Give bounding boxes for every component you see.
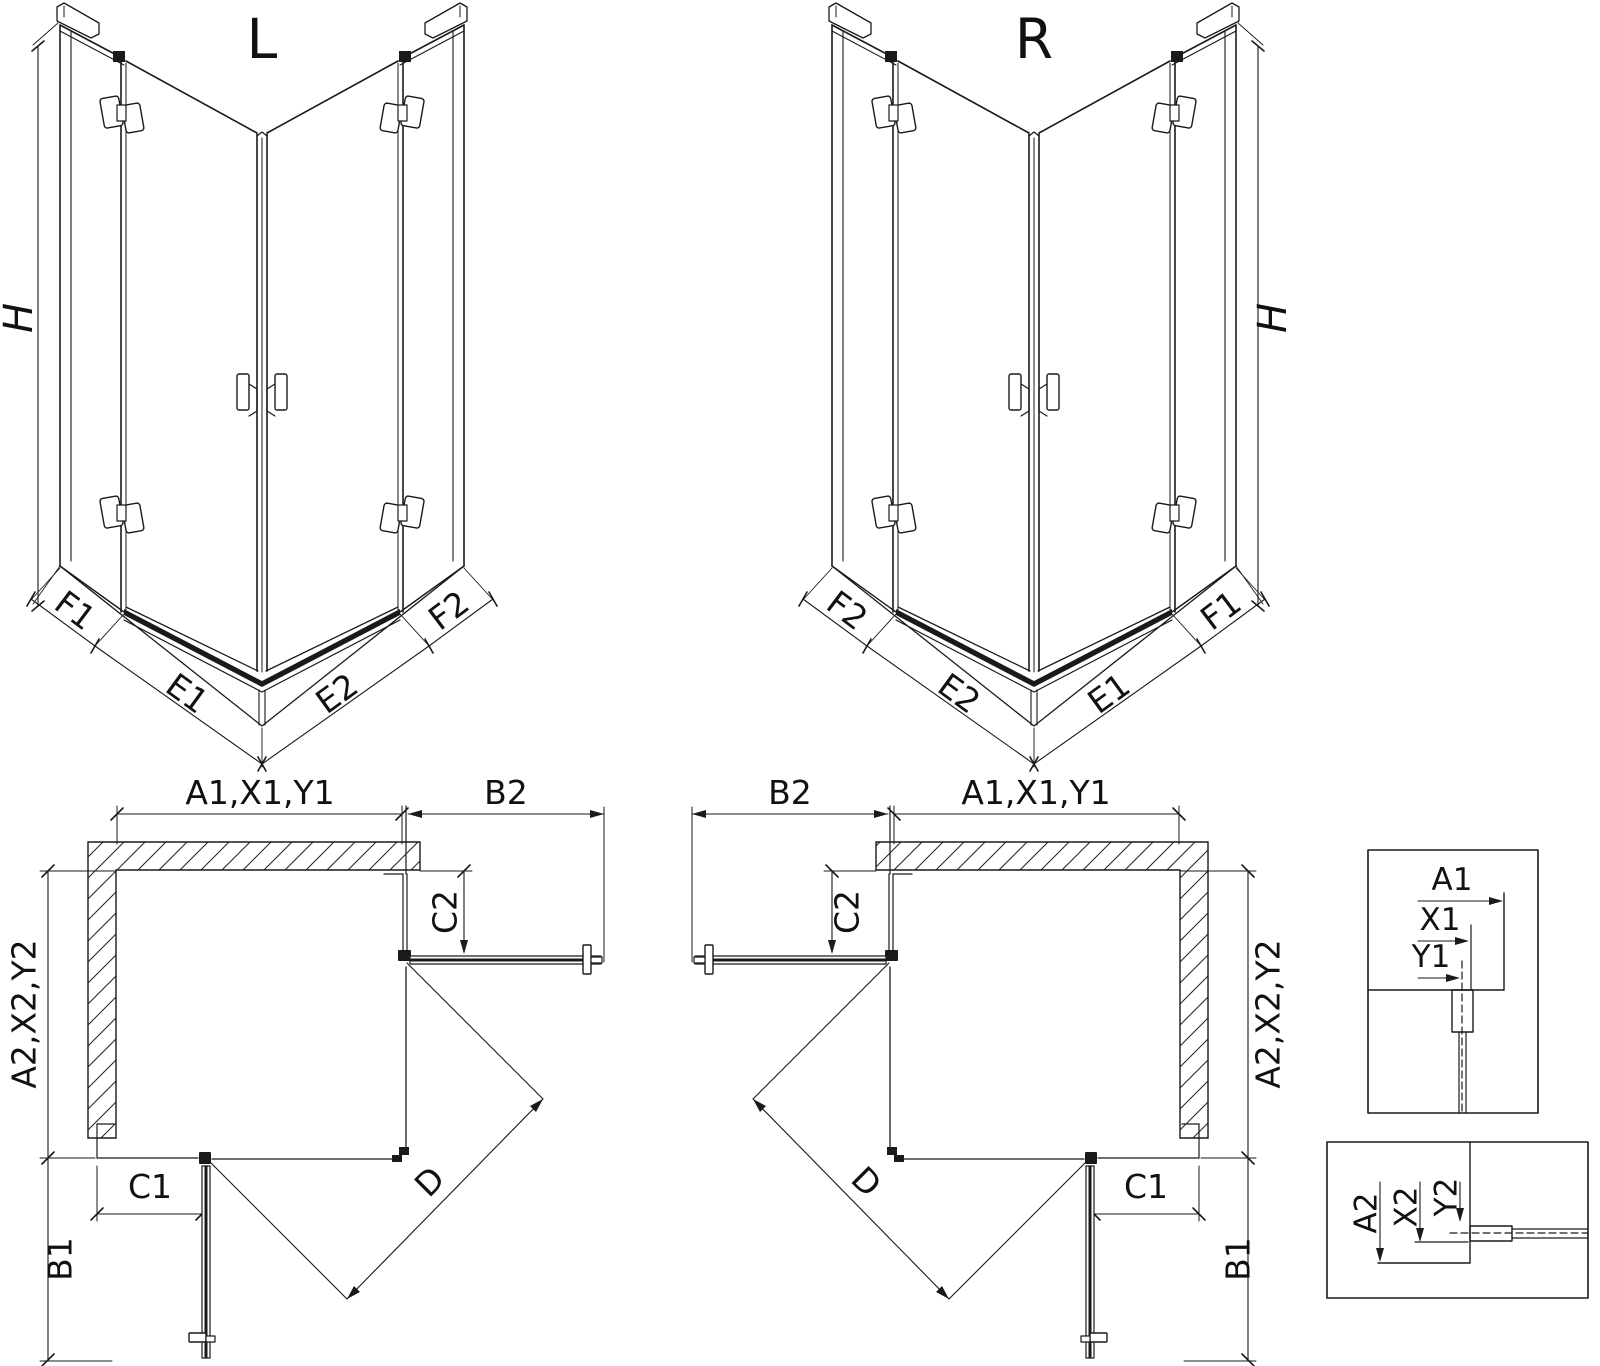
plan-left-dim-b1: B1 [41, 1237, 80, 1281]
diagram-canvas: L H F1 E1 E2 F2 R H F2 E2 E1 F1 A1,X1,Y1… [0, 0, 1600, 1366]
detail-bottom-label-a2: A2 [1349, 1193, 1385, 1234]
iso-left-height-label: H [0, 303, 42, 333]
plan-left-dim-c2: C2 [426, 890, 465, 934]
plan-right-dim-c1: C1 [1124, 1167, 1168, 1206]
plan-right-dim-b2: B2 [768, 773, 812, 812]
technical-drawing-page: L H F1 E1 E2 F2 R H F2 E2 E1 F1 A1,X1,Y1… [0, 0, 1600, 1366]
plan-left-dim-c1: C1 [128, 1167, 172, 1206]
page-background [0, 0, 1600, 1366]
iso-left-title: L [247, 7, 278, 71]
detail-top-label-a1: A1 [1432, 862, 1473, 898]
detail-bottom-label-y2: Y2 [1429, 1178, 1465, 1218]
detail-bottom-label-x2: X2 [1389, 1187, 1425, 1228]
plan-right-dim-b1: B1 [1219, 1237, 1258, 1281]
plan-left-dim-b2: B2 [484, 773, 528, 812]
iso-right-title: R [1015, 7, 1053, 71]
detail-top-label-x1: X1 [1420, 902, 1461, 938]
plan-left-dim-a2: A2,X2,Y2 [5, 939, 44, 1088]
plan-right-dim-a2: A2,X2,Y2 [1249, 939, 1288, 1088]
plan-right-dim-c2: C2 [828, 890, 867, 934]
plan-right-dim-a1: A1,X1,Y1 [961, 773, 1110, 812]
iso-right-height-label: H [1250, 303, 1296, 333]
detail-top-label-y1: Y1 [1411, 939, 1451, 975]
plan-left-dim-a1: A1,X1,Y1 [185, 773, 334, 812]
